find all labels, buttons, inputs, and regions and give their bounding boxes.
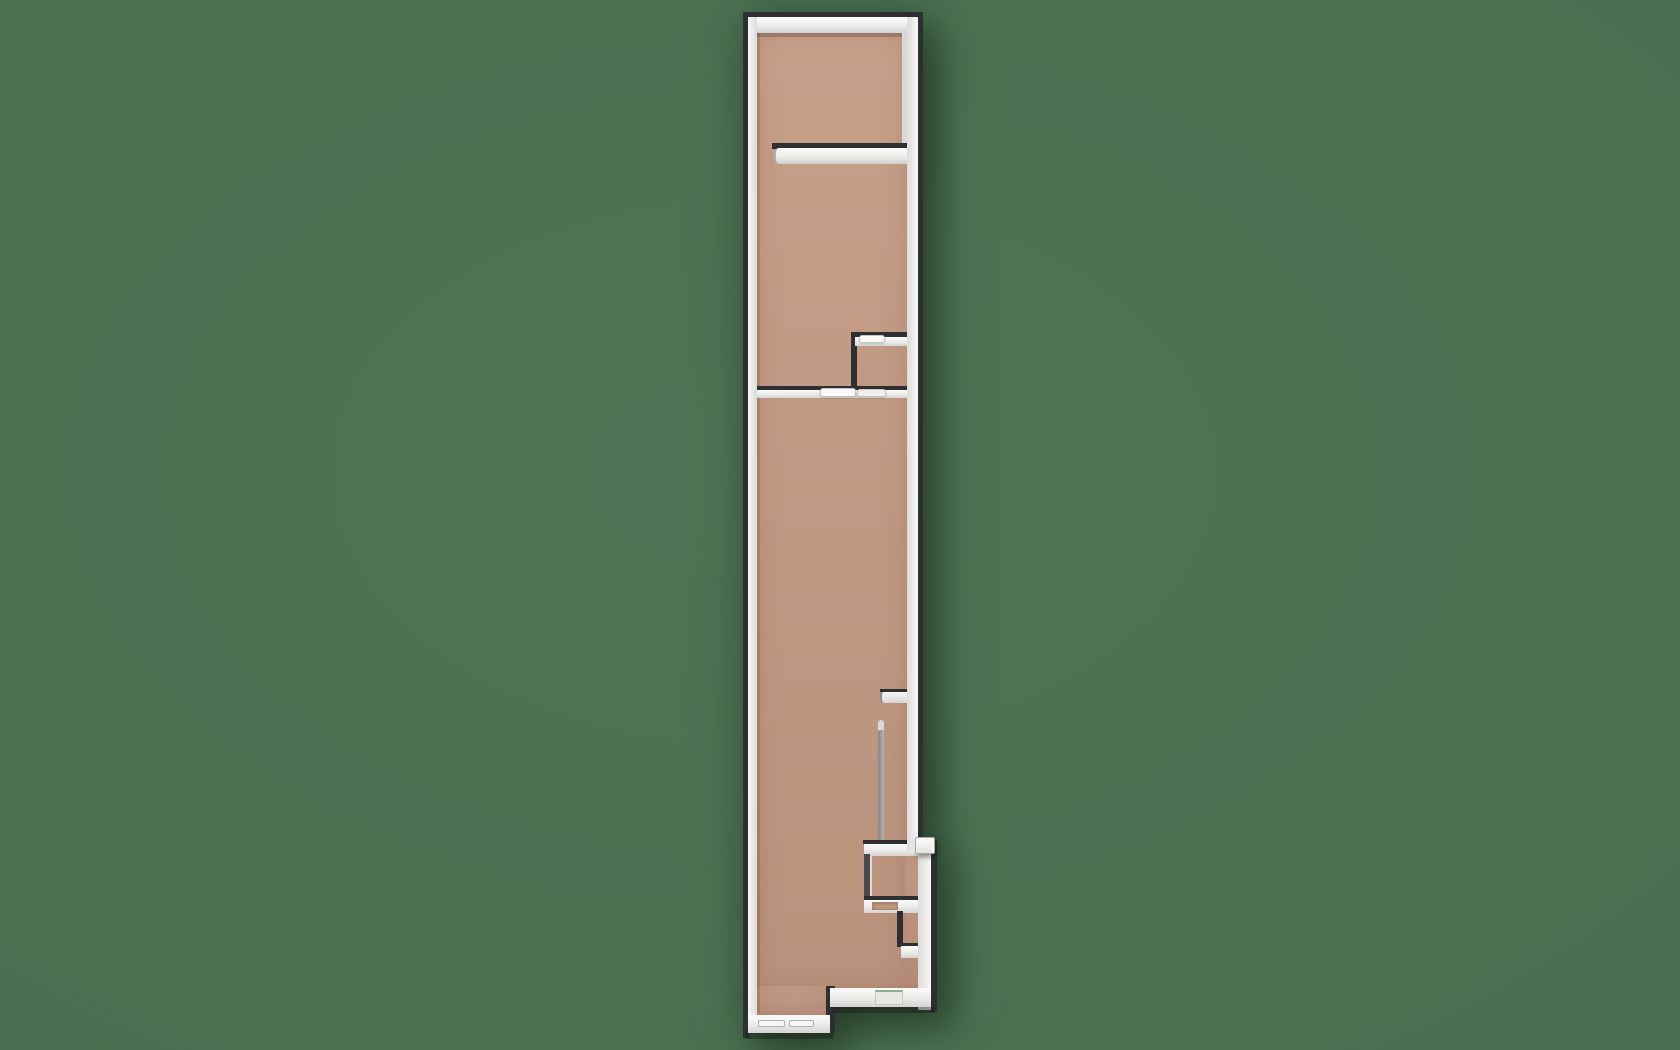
alcove-door-leaf [859,335,885,343]
bottom-window-right [789,1020,814,1027]
bottom-window-left [758,1020,785,1027]
right-wall-upper [907,17,918,853]
counter-box-left-wall [864,854,872,900]
floor-bottom-left [757,986,830,1017]
entry-recess [875,990,903,1005]
bottom-wall-right-shadow [832,1007,935,1013]
divider-door-right-leaf [857,389,886,397]
green-backdrop [0,0,1680,1050]
wall-bump-box [915,837,935,854]
right-wall-lower [918,838,931,1010]
floor-contact-shadow-top [757,33,907,37]
bottom-wall-left-shadow [746,1033,834,1039]
right-wall-lower-outer-edge [930,841,937,1012]
stub-wall [880,692,910,703]
pole [878,730,884,844]
top-wall [748,17,920,33]
left-wall [748,17,757,1033]
floorplan-render [0,0,1680,1050]
floor-contact-shadow-left [757,33,760,1013]
lower-box-left-edge [897,911,903,947]
upper-shelf-wall [774,148,907,164]
divider-door-left-leaf [820,388,856,397]
counter-tray [872,902,898,910]
